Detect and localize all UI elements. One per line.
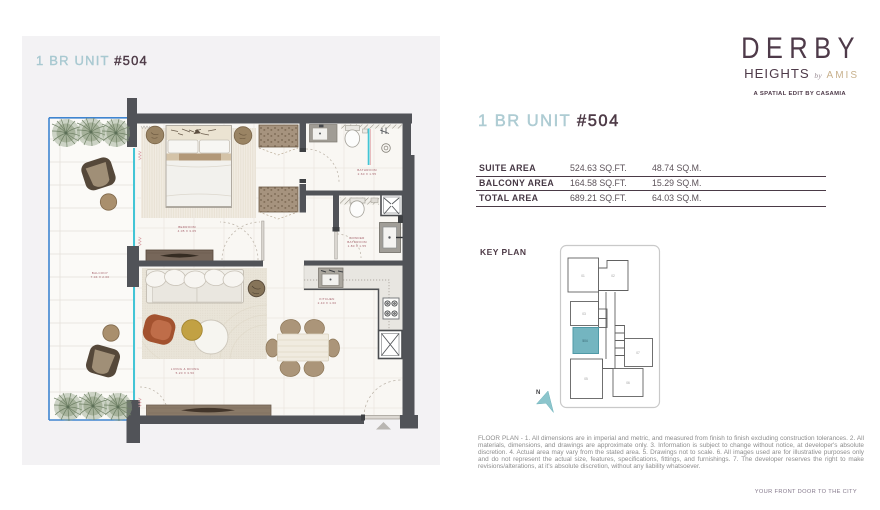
svg-text:03: 03 bbox=[582, 312, 586, 316]
svg-text:2.40 X 1.60: 2.40 X 1.60 bbox=[318, 301, 337, 305]
svg-text:4.05 X 3.05: 4.05 X 3.05 bbox=[178, 229, 197, 233]
svg-text:06: 06 bbox=[626, 381, 630, 385]
svg-text:2.60 X 1.55: 2.60 X 1.55 bbox=[358, 172, 377, 176]
svg-text:01: 01 bbox=[581, 274, 585, 278]
svg-text:07: 07 bbox=[636, 351, 640, 355]
svg-text:1.80 X 1.55: 1.80 X 1.55 bbox=[348, 244, 367, 248]
svg-text:504: 504 bbox=[582, 339, 588, 343]
svg-text:05: 05 bbox=[584, 377, 588, 381]
svg-text:N: N bbox=[536, 390, 540, 396]
svg-text:02: 02 bbox=[611, 274, 615, 278]
svg-text:5.20 X 3.50: 5.20 X 3.50 bbox=[176, 371, 195, 375]
svg-text:7.04 X 2.00: 7.04 X 2.00 bbox=[91, 275, 110, 279]
